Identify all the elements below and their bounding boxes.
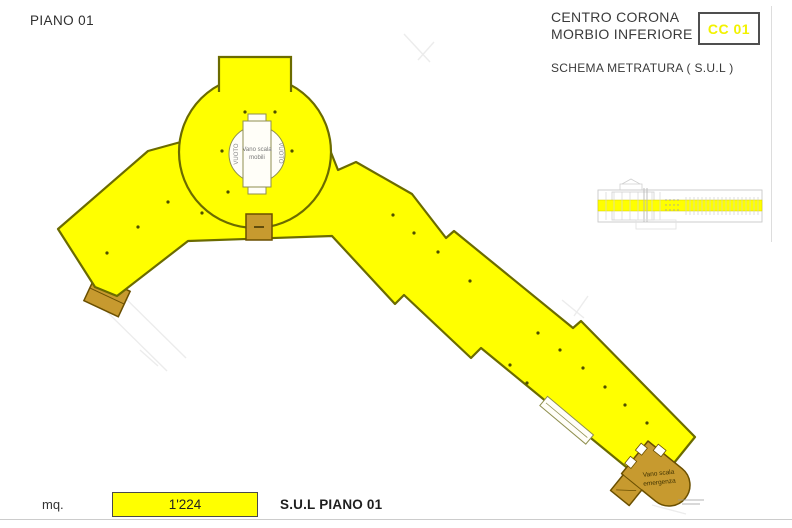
- drawing-sheet: PIANO 01 CENTRO CORONA MORBIO INFERIORE …: [0, 0, 792, 528]
- minimap-floor-highlight: [598, 200, 762, 211]
- area-value: 1'224: [169, 497, 202, 512]
- area-label: S.U.L PIANO 01: [280, 497, 382, 512]
- central-stair-label-line2: mobili: [249, 155, 265, 161]
- unit-label: mq.: [42, 497, 64, 512]
- service-box: [246, 214, 272, 240]
- floor-plan-drawing: VUOTO VUOTO Vano scala mobili: [0, 0, 792, 528]
- area-value-box: 1'224: [112, 492, 258, 517]
- rotunda-top-bay: [219, 57, 291, 92]
- floor-area: [58, 140, 695, 489]
- vuoto-label-left: VUOTO: [234, 143, 240, 165]
- central-stair-label-line1: Vano scala: [242, 147, 272, 153]
- vuoto-label-right: VUOTO: [277, 142, 283, 164]
- minimap: [598, 179, 762, 229]
